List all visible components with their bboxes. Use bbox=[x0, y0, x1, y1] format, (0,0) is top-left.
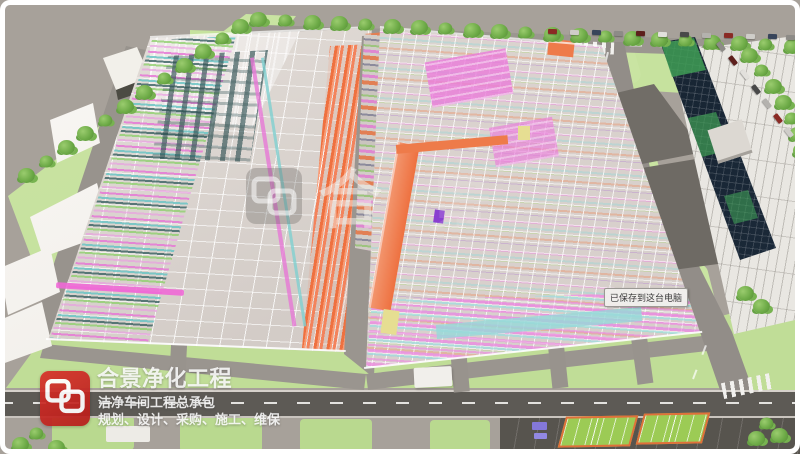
car bbox=[773, 113, 783, 124]
watermark-char: 景 bbox=[428, 172, 492, 236]
car bbox=[728, 55, 738, 66]
interlock-logo-icon bbox=[44, 375, 86, 417]
car bbox=[751, 84, 761, 95]
car bbox=[570, 30, 579, 35]
watermark-logo-icon bbox=[246, 168, 302, 224]
company-logo bbox=[40, 371, 90, 426]
car bbox=[614, 31, 623, 36]
car bbox=[784, 127, 794, 138]
car bbox=[702, 33, 711, 38]
car bbox=[680, 32, 689, 37]
car bbox=[716, 41, 726, 52]
car bbox=[740, 69, 750, 80]
car bbox=[746, 34, 755, 39]
car bbox=[658, 32, 667, 37]
site-3d-render: 合 景 合景净化工程 洁净车间工程总承包 规划、设计、采购、施工、维保 已保存到… bbox=[0, 0, 800, 454]
car bbox=[636, 31, 645, 36]
car bbox=[592, 30, 601, 35]
car bbox=[786, 35, 795, 40]
save-status-tooltip: 已保存到这台电脑 bbox=[604, 288, 688, 307]
watermark-char: 合 bbox=[318, 168, 382, 232]
car bbox=[768, 34, 777, 39]
car bbox=[548, 29, 557, 34]
car bbox=[724, 33, 733, 38]
company-title: 合景净化工程 bbox=[97, 361, 232, 393]
interlock-logo-icon bbox=[250, 172, 298, 220]
company-tagline: 规划、设计、采购、施工、维保 bbox=[98, 409, 280, 428]
car bbox=[762, 98, 772, 109]
